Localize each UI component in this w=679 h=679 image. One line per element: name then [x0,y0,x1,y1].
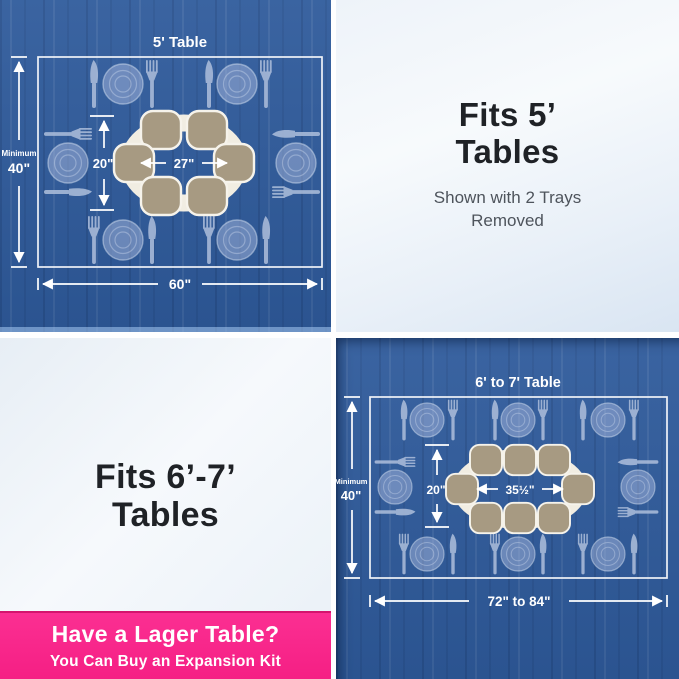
table-width-dimension: 60" [38,276,322,292]
plate-icon [217,64,257,104]
fits-67ft-heading: Fits 6’-7’ Tables [95,458,236,534]
note-line-2: Removed [434,209,581,232]
fork-icon [629,400,639,441]
fits-5ft-panel: Fits 5’ Tables Shown with 2 Trays Remove… [336,0,679,332]
table-depth-dimension: Minimum 40" [1,57,36,267]
susan-width-value: 27" [174,156,195,171]
tray [446,474,478,504]
plate-icon [591,403,625,437]
five-foot-table-diagram: 5' Table [0,0,331,332]
susan-depth-value: 20" [93,156,114,171]
plate-icon [103,220,143,260]
knife-icon [90,60,98,108]
plate-icon [501,537,535,571]
minimum-label: Minimum [1,149,36,158]
knife-icon [44,188,92,196]
knife-icon [262,216,270,264]
susan-depth-dimension: 20" [90,116,114,210]
susan-width-dimension: 35½" [477,483,563,497]
susan-depth-value: 20" [426,483,445,497]
fork-icon [146,60,158,108]
table-width-dimension: 72" to 84" [370,594,667,609]
knife-icon [272,130,320,138]
tray [504,445,536,475]
trays-removed-note: Shown with 2 Trays Removed [434,186,581,232]
table-depth-value: 40" [341,488,362,503]
tray [187,111,227,149]
fork-icon [448,400,458,441]
tray [538,445,570,475]
knife-icon [618,459,659,466]
knife-icon [540,534,547,575]
banner-subtext: You Can Buy an Expansion Kit [50,653,281,671]
fork-icon [538,400,548,441]
tray [470,445,502,475]
table-width-value: 72" to 84" [487,594,550,609]
knife-icon [631,534,638,575]
knife-icon [450,534,457,575]
knife-icon [580,400,587,441]
tray [141,177,181,215]
knife-icon [148,216,156,264]
fork-icon [44,128,92,140]
fork-icon [260,60,272,108]
fork-icon [88,216,100,264]
heading-line-1: Fits 5’ [456,96,560,133]
expansion-kit-banner: Have a Lager Table? You Can Buy an Expan… [0,611,331,679]
tray [562,474,594,504]
banner-heading: Have a Lager Table? [52,621,280,648]
tray [538,503,570,533]
heading-line-2: Tables [95,496,236,534]
six-seven-foot-table-drawing: 6' to 7' Table [336,338,679,679]
tray [141,111,181,149]
plate-icon [103,64,143,104]
six-seven-foot-table-diagram: 6' to 7' Table [336,338,679,679]
plate-icon [378,470,412,504]
susan-width-value: 35½" [505,483,534,497]
fits-67ft-panel: Fits 6’-7’ Tables Have a Lager Table? Yo… [0,338,331,679]
fork-icon [375,457,416,467]
fork-icon [203,216,215,264]
fits-5ft-heading: Fits 5’ Tables [456,96,560,170]
minimum-label: Minimum [336,477,368,486]
plate-icon [48,143,88,183]
fork-icon [618,507,659,517]
plate-icon [276,143,316,183]
lazy-susan-size-infographic: 5' Table [0,0,679,679]
knife-icon [375,509,416,516]
note-line-1: Shown with 2 Trays [434,186,581,209]
table-depth-dimension: Minimum 40" [336,397,368,578]
plate-icon [501,403,535,437]
diagram-title: 5' Table [153,34,207,51]
five-foot-table-drawing: 5' Table [0,0,331,332]
tray [470,503,502,533]
plate-icon [410,403,444,437]
knife-icon [401,400,408,441]
diagram-title: 6' to 7' Table [475,375,561,391]
fork-icon [399,534,409,575]
heading-line-2: Tables [456,133,560,170]
fork-icon [490,534,500,575]
plate-icon [217,220,257,260]
plate-icon [621,470,655,504]
tray [187,177,227,215]
susan-depth-dimension: 20" [425,445,449,527]
plate-icon [591,537,625,571]
plate-icon [410,537,444,571]
fork-icon [578,534,588,575]
heading-line-1: Fits 6’-7’ [95,458,236,496]
table-width-value: 60" [169,276,191,292]
tray [504,503,536,533]
fork-icon [272,186,320,198]
table-depth-value: 40" [8,160,30,176]
knife-icon [492,400,499,441]
knife-icon [205,60,213,108]
